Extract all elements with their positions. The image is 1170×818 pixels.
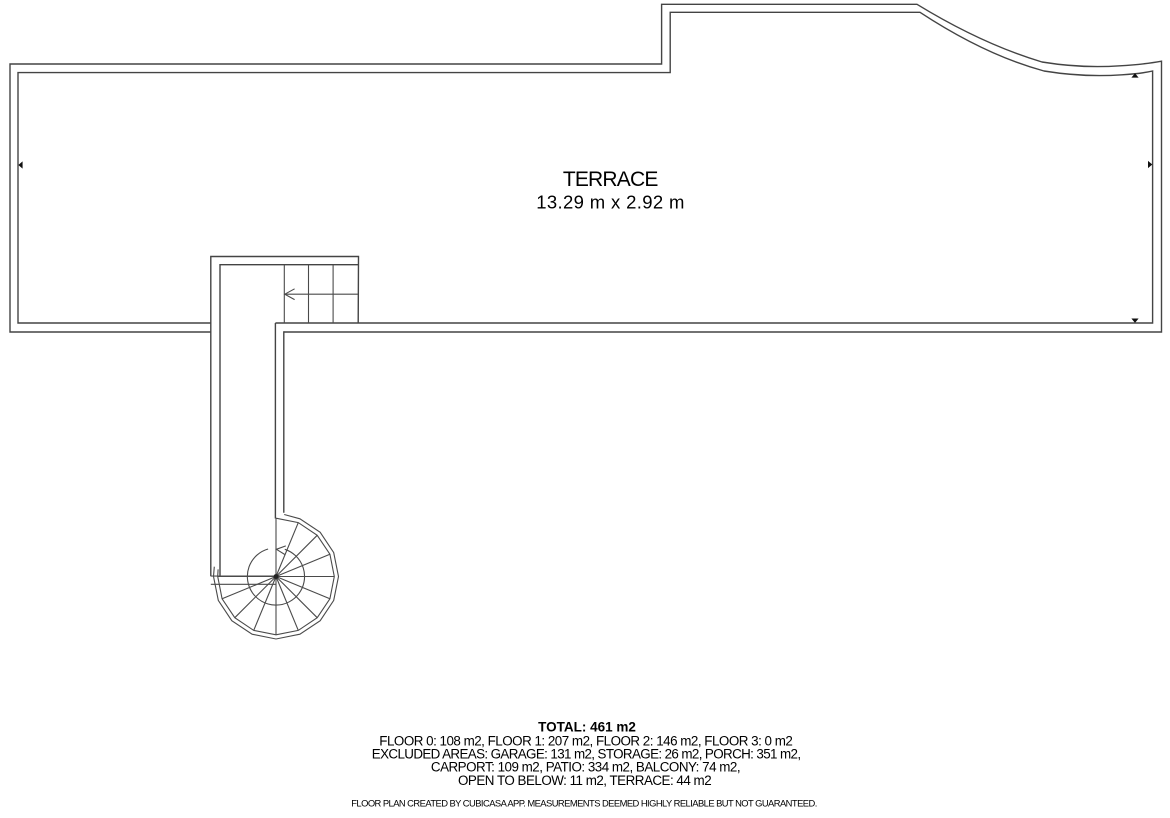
svg-text:TOTAL: 461 m2: TOTAL: 461 m2 [538,720,636,735]
svg-text:OPEN TO BELOW: 11 m2, TERRACE:: OPEN TO BELOW: 11 m2, TERRACE: 44 m2 [458,773,711,788]
svg-text:FLOOR PLAN CREATED BY CUBICASA: FLOOR PLAN CREATED BY CUBICASA APP. MEAS… [351,798,817,809]
svg-text:TERRACE: TERRACE [563,168,659,191]
svg-text:13.29 m x 2.92 m: 13.29 m x 2.92 m [536,191,685,212]
